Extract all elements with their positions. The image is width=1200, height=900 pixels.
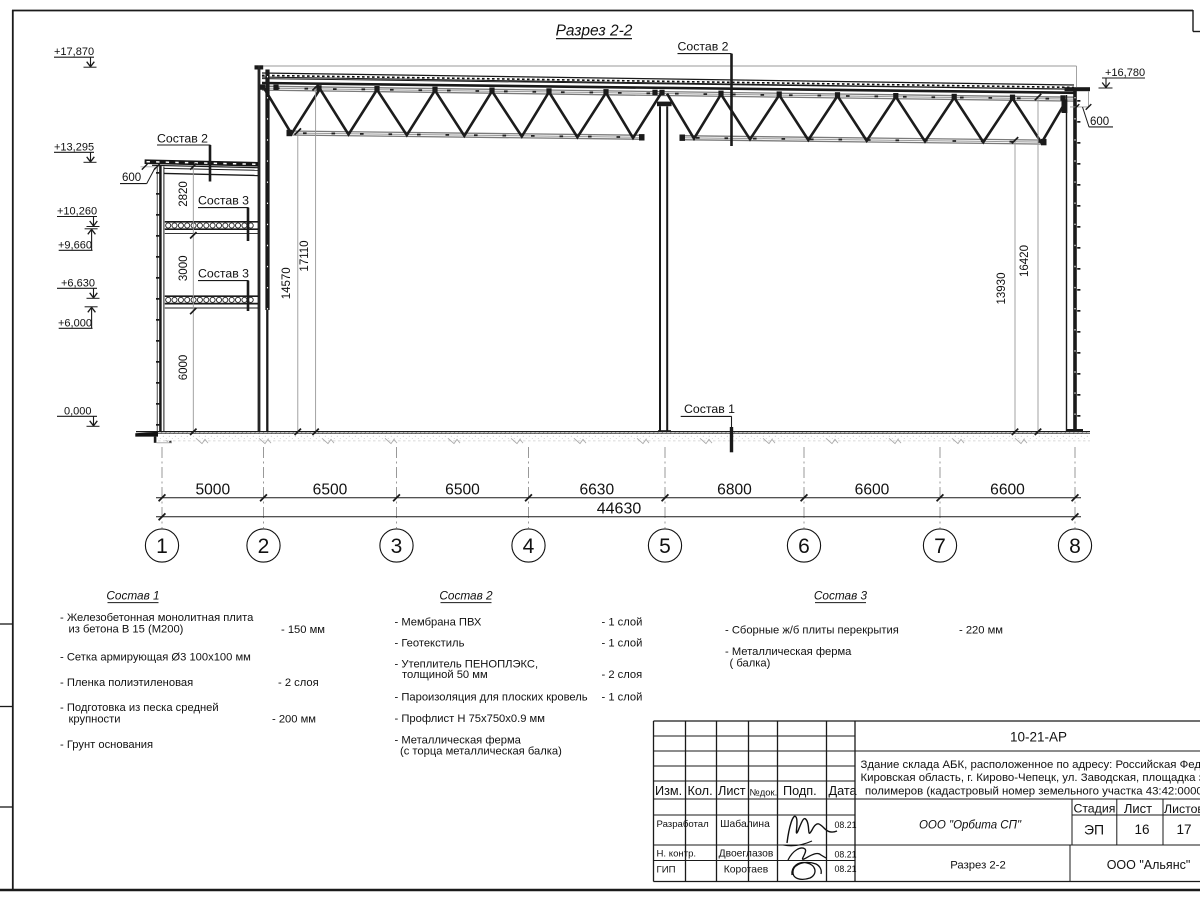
svg-text:+10,260: +10,260 — [57, 206, 97, 218]
svg-text:44630: 44630 — [597, 501, 642, 518]
svg-text:крупности: крупности — [69, 714, 121, 726]
svg-text:Состав 2: Состав 2 — [439, 589, 493, 603]
svg-text:Состав 2: Состав 2 — [678, 40, 729, 54]
svg-text:- Сборные ж/б плиты перекрытия: - Сборные ж/б плиты перекрытия — [725, 625, 899, 637]
svg-text:№док.: №док. — [750, 788, 778, 799]
svg-text:ЭП: ЭП — [1084, 822, 1104, 838]
svg-text:6630: 6630 — [579, 481, 614, 498]
svg-text:3: 3 — [391, 535, 403, 558]
svg-text:0,000: 0,000 — [64, 405, 92, 417]
svg-text:2820: 2820 — [178, 181, 190, 207]
svg-text:Подп.: Подп. — [783, 784, 817, 798]
svg-text:(с торца металлическая балка): (с торца металлическая балка) — [400, 746, 562, 758]
svg-text:+6,000: +6,000 — [58, 317, 92, 329]
svg-text:6800: 6800 — [717, 481, 752, 498]
svg-text:Состав 3: Состав 3 — [814, 589, 868, 603]
svg-text:Стадия: Стадия — [1073, 802, 1115, 816]
svg-text:- Профлист Н 75х750х0.9 мм: - Профлист Н 75х750х0.9 мм — [395, 713, 545, 725]
svg-text:Лист: Лист — [1124, 801, 1152, 816]
svg-text:Кировская область, г. Кирово-Ч: Кировская область, г. Кирово-Чепецк, ул.… — [861, 772, 1200, 784]
svg-text:- Металлическая ферма: - Металлическая ферма — [395, 734, 522, 746]
svg-text:08.21: 08.21 — [834, 850, 856, 860]
svg-text:Дата: Дата — [829, 784, 858, 798]
svg-text:- 200 мм: - 200 мм — [272, 714, 316, 726]
svg-text:8: 8 — [1069, 535, 1081, 558]
svg-text:Состав 2: Состав 2 — [157, 132, 208, 146]
svg-text:( балка): ( балка) — [730, 657, 771, 669]
svg-text:- 1 слой: - 1 слой — [602, 638, 643, 650]
svg-text:- Сетка армирующая Ø3 100х100: - Сетка армирующая Ø3 100х100 мм — [60, 652, 251, 664]
svg-text:Разрез 2-2: Разрез 2-2 — [556, 23, 633, 40]
svg-text:+17,870: +17,870 — [54, 46, 94, 58]
svg-text:Разрез 2-2: Разрез 2-2 — [950, 860, 1005, 872]
svg-text:- 1 слой: - 1 слой — [602, 617, 643, 629]
svg-text:6500: 6500 — [445, 481, 480, 498]
svg-text:- Мембрана ПВХ: - Мембрана ПВХ — [395, 617, 482, 629]
svg-text:6000: 6000 — [178, 355, 190, 381]
svg-text:- 150 мм: - 150 мм — [281, 624, 325, 636]
svg-text:Листов: Листов — [1164, 802, 1200, 816]
svg-text:2: 2 — [258, 535, 270, 558]
svg-text:7: 7 — [934, 535, 946, 558]
svg-text:6600: 6600 — [990, 481, 1025, 498]
svg-text:+9,660: +9,660 — [58, 239, 92, 251]
svg-text:ГИП: ГИП — [657, 865, 676, 876]
svg-text:08.21: 08.21 — [834, 820, 856, 830]
svg-text:Состав 3: Состав 3 — [198, 267, 249, 281]
svg-text:6500: 6500 — [313, 481, 348, 498]
svg-text:Шабалина: Шабалина — [720, 818, 770, 830]
svg-text:600: 600 — [1090, 116, 1109, 128]
svg-text:- 220 мм: - 220 мм — [959, 625, 1003, 637]
svg-text:+6,630: +6,630 — [61, 277, 95, 289]
svg-text:Двоеглазов: Двоеглазов — [719, 849, 774, 860]
svg-text:16420: 16420 — [1019, 245, 1031, 277]
svg-text:Разработал: Разработал — [657, 819, 709, 830]
svg-text:Здание склада АБК, расположенн: Здание склада АБК, расположенное по адре… — [861, 759, 1200, 771]
svg-text:600: 600 — [122, 172, 141, 184]
svg-text:- Геотекстиль: - Геотекстиль — [395, 638, 465, 650]
svg-text:Состав 1: Состав 1 — [684, 402, 735, 416]
svg-text:- Пароизоляция для плоских кро: - Пароизоляция для плоских кровель — [395, 692, 588, 704]
svg-text:- 1 слой: - 1 слой — [602, 692, 643, 704]
svg-text:полимеров (кадастровый номер з: полимеров (кадастровый номер земельного … — [865, 786, 1200, 798]
svg-text:5: 5 — [659, 535, 671, 558]
svg-text:+16,780: +16,780 — [1105, 67, 1145, 79]
svg-text:17110: 17110 — [299, 240, 311, 271]
svg-text:- 2 слоя: - 2 слоя — [602, 669, 643, 681]
svg-text:- Пленка полиэтиленовая: - Пленка полиэтиленовая — [60, 677, 193, 689]
svg-text:5000: 5000 — [195, 481, 230, 498]
svg-text:ООО "Альянс": ООО "Альянс" — [1107, 858, 1191, 872]
svg-text:Коротаев: Коротаев — [724, 865, 769, 876]
svg-text:Лист: Лист — [718, 784, 746, 798]
svg-text:4: 4 — [523, 535, 535, 558]
svg-text:- Грунт основания: - Грунт основания — [60, 739, 153, 751]
svg-text:- Подготовка из песка средней: - Подготовка из песка средней — [60, 702, 219, 714]
svg-text:толщиной 50 мм: толщиной 50 мм — [402, 669, 488, 681]
svg-text:13930: 13930 — [996, 273, 1008, 305]
svg-text:Состав 1: Состав 1 — [106, 589, 159, 603]
svg-text:Изм.: Изм. — [655, 784, 682, 798]
svg-text:3000: 3000 — [178, 256, 190, 282]
svg-text:14570: 14570 — [281, 267, 293, 299]
svg-text:Состав 3: Состав 3 — [198, 194, 249, 208]
svg-text:6: 6 — [798, 535, 810, 558]
svg-text:- Железобетонная монолитная п: - Железобетонная монолитная плита — [60, 612, 254, 624]
svg-text:из бетона В 15 (М200): из бетона В 15 (М200) — [69, 624, 184, 636]
svg-text:16: 16 — [1134, 822, 1149, 837]
svg-text:Н. контр.: Н. контр. — [657, 849, 697, 860]
svg-text:ООО "Орбита СП": ООО "Орбита СП" — [919, 820, 1022, 832]
svg-text:Кол.: Кол. — [688, 784, 713, 798]
svg-text:- 2 слоя: - 2 слоя — [278, 677, 319, 689]
svg-text:10-21-АР: 10-21-АР — [1010, 730, 1067, 745]
svg-text:1: 1 — [156, 535, 168, 558]
svg-text:- Металлическая ферма: - Металлическая ферма — [725, 646, 852, 658]
svg-text:08.21: 08.21 — [834, 864, 856, 874]
svg-text:6600: 6600 — [855, 481, 890, 498]
svg-text:+13,295: +13,295 — [54, 141, 94, 153]
svg-text:17: 17 — [1176, 822, 1191, 837]
